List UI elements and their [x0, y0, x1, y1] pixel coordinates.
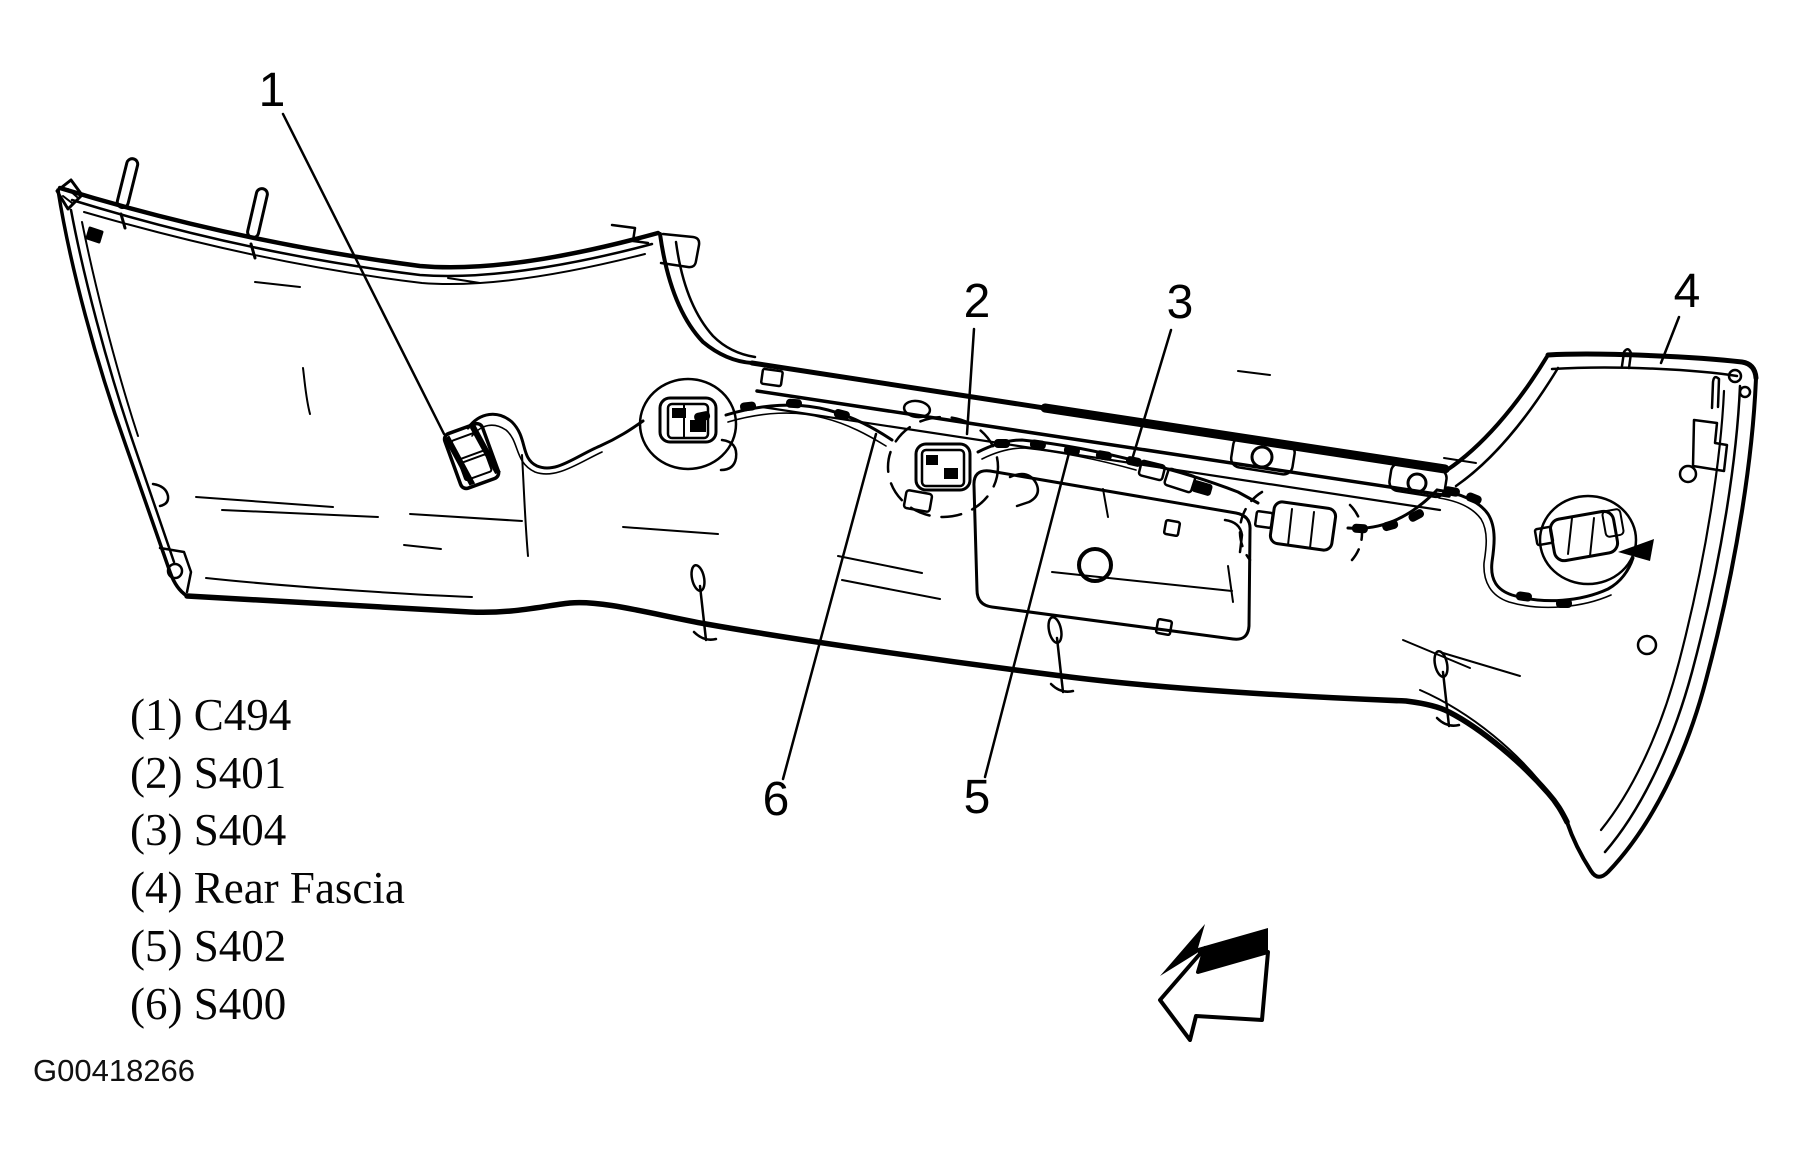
left-edge-outer — [58, 190, 187, 596]
callout-4: 4 — [1661, 265, 1700, 363]
lamp-socket-left — [640, 379, 736, 470]
wiring-harness — [443, 398, 1654, 608]
bottom-edge-companion-left — [206, 578, 472, 597]
lamp-socket-center — [888, 417, 998, 517]
socket-lower-clip — [904, 490, 933, 512]
rail-plate-1-hole — [1252, 447, 1272, 467]
callout-number-6: 6 — [763, 773, 790, 826]
legend-item-1: (1) C494 — [130, 690, 291, 740]
rail-plate-2-hole — [1408, 474, 1426, 492]
socket-connector-pin — [944, 468, 958, 479]
callout-number-3: 3 — [1167, 276, 1194, 329]
legend-item-2: (2) S401 — [130, 748, 286, 798]
rail-line-2 — [757, 391, 1449, 496]
figure-id: G00418266 — [33, 1053, 195, 1088]
cap-corner-bolt-2 — [1740, 387, 1750, 397]
callout-number-1: 1 — [259, 64, 286, 117]
cap-lower-hole — [1638, 636, 1656, 654]
legend-item-6: (6) S400 — [130, 979, 286, 1029]
socket-recess — [640, 379, 736, 469]
sensor-body — [1269, 501, 1336, 551]
pocket-hook — [1010, 474, 1038, 506]
push-pin — [689, 564, 716, 640]
connector-c494 — [443, 421, 502, 490]
cap-top-inner — [1552, 368, 1737, 376]
cap-concave-outer — [1447, 355, 1548, 470]
leader-line-6 — [783, 434, 876, 779]
sensor-right — [1535, 496, 1636, 584]
callout-6: 6 — [763, 434, 876, 826]
rear-fascia-harness-diagram: 1 2 3 4 5 6 (1) C494 (2) S401 (3) S404 (… — [0, 0, 1798, 1159]
left-top-edge-outer — [60, 188, 658, 267]
sensor-body-lines — [1568, 518, 1594, 556]
callout-number-2: 2 — [964, 275, 991, 328]
cap-right-outer — [1567, 378, 1756, 877]
harness-beads — [693, 398, 1572, 608]
direction-arrow-icon — [1160, 924, 1268, 1040]
mounting-tabs — [116, 158, 648, 258]
mounting-tab — [247, 188, 269, 239]
sensor-stub — [1255, 511, 1273, 528]
pocket-outline — [974, 471, 1250, 639]
push-pin — [1046, 616, 1073, 692]
callouts: 1 2 3 4 5 6 — [259, 64, 1701, 826]
fascia-outline — [57, 180, 1756, 877]
left-top-edge-inner1 — [72, 200, 652, 276]
callout-number-5: 5 — [964, 771, 991, 824]
left-edge-clip-mark — [87, 228, 102, 242]
step-inner — [676, 242, 755, 357]
socket-connector-pin — [672, 408, 686, 418]
pocket-square-hole — [1164, 520, 1180, 536]
diagram-page: 1 2 3 4 5 6 (1) C494 (2) S401 (3) S404 (… — [0, 0, 1798, 1159]
leader-line-2 — [967, 329, 974, 434]
legend-item-4: (4) Rear Fascia — [130, 863, 405, 913]
license-plate-pocket — [974, 471, 1250, 639]
sensor-body-lines — [1288, 509, 1314, 548]
cap-bracket-hole — [1680, 466, 1696, 482]
callout-number-4: 4 — [1674, 265, 1701, 318]
leader-line-3 — [1131, 330, 1171, 463]
cap-top-clip — [1622, 349, 1631, 368]
harness-run-2b — [728, 413, 886, 446]
bottom-edge — [187, 596, 1567, 822]
sensor-recess — [1540, 496, 1636, 584]
cap-right-inner2 — [1601, 391, 1724, 830]
cap-pin — [1712, 377, 1719, 408]
legend-item-3: (3) S404 — [130, 805, 286, 855]
pocket-square-hole — [1156, 619, 1172, 635]
cap-concave-inner — [1456, 368, 1558, 486]
rail-oval-hole — [903, 399, 931, 418]
step-outer — [660, 234, 752, 363]
left-hook-tab — [153, 484, 168, 506]
legend-item-5: (5) S402 — [130, 921, 286, 971]
socket-connector-pin — [926, 455, 938, 465]
legend: (1) C494 (2) S401 (3) S404 (4) Rear Fasc… — [130, 690, 405, 1029]
socket-connector-pin — [690, 420, 706, 432]
callout-1: 1 — [259, 64, 444, 434]
rail-square-hole — [761, 369, 783, 387]
callout-3: 3 — [1131, 276, 1193, 463]
mounting-tab — [116, 158, 139, 209]
callout-2: 2 — [964, 275, 991, 434]
